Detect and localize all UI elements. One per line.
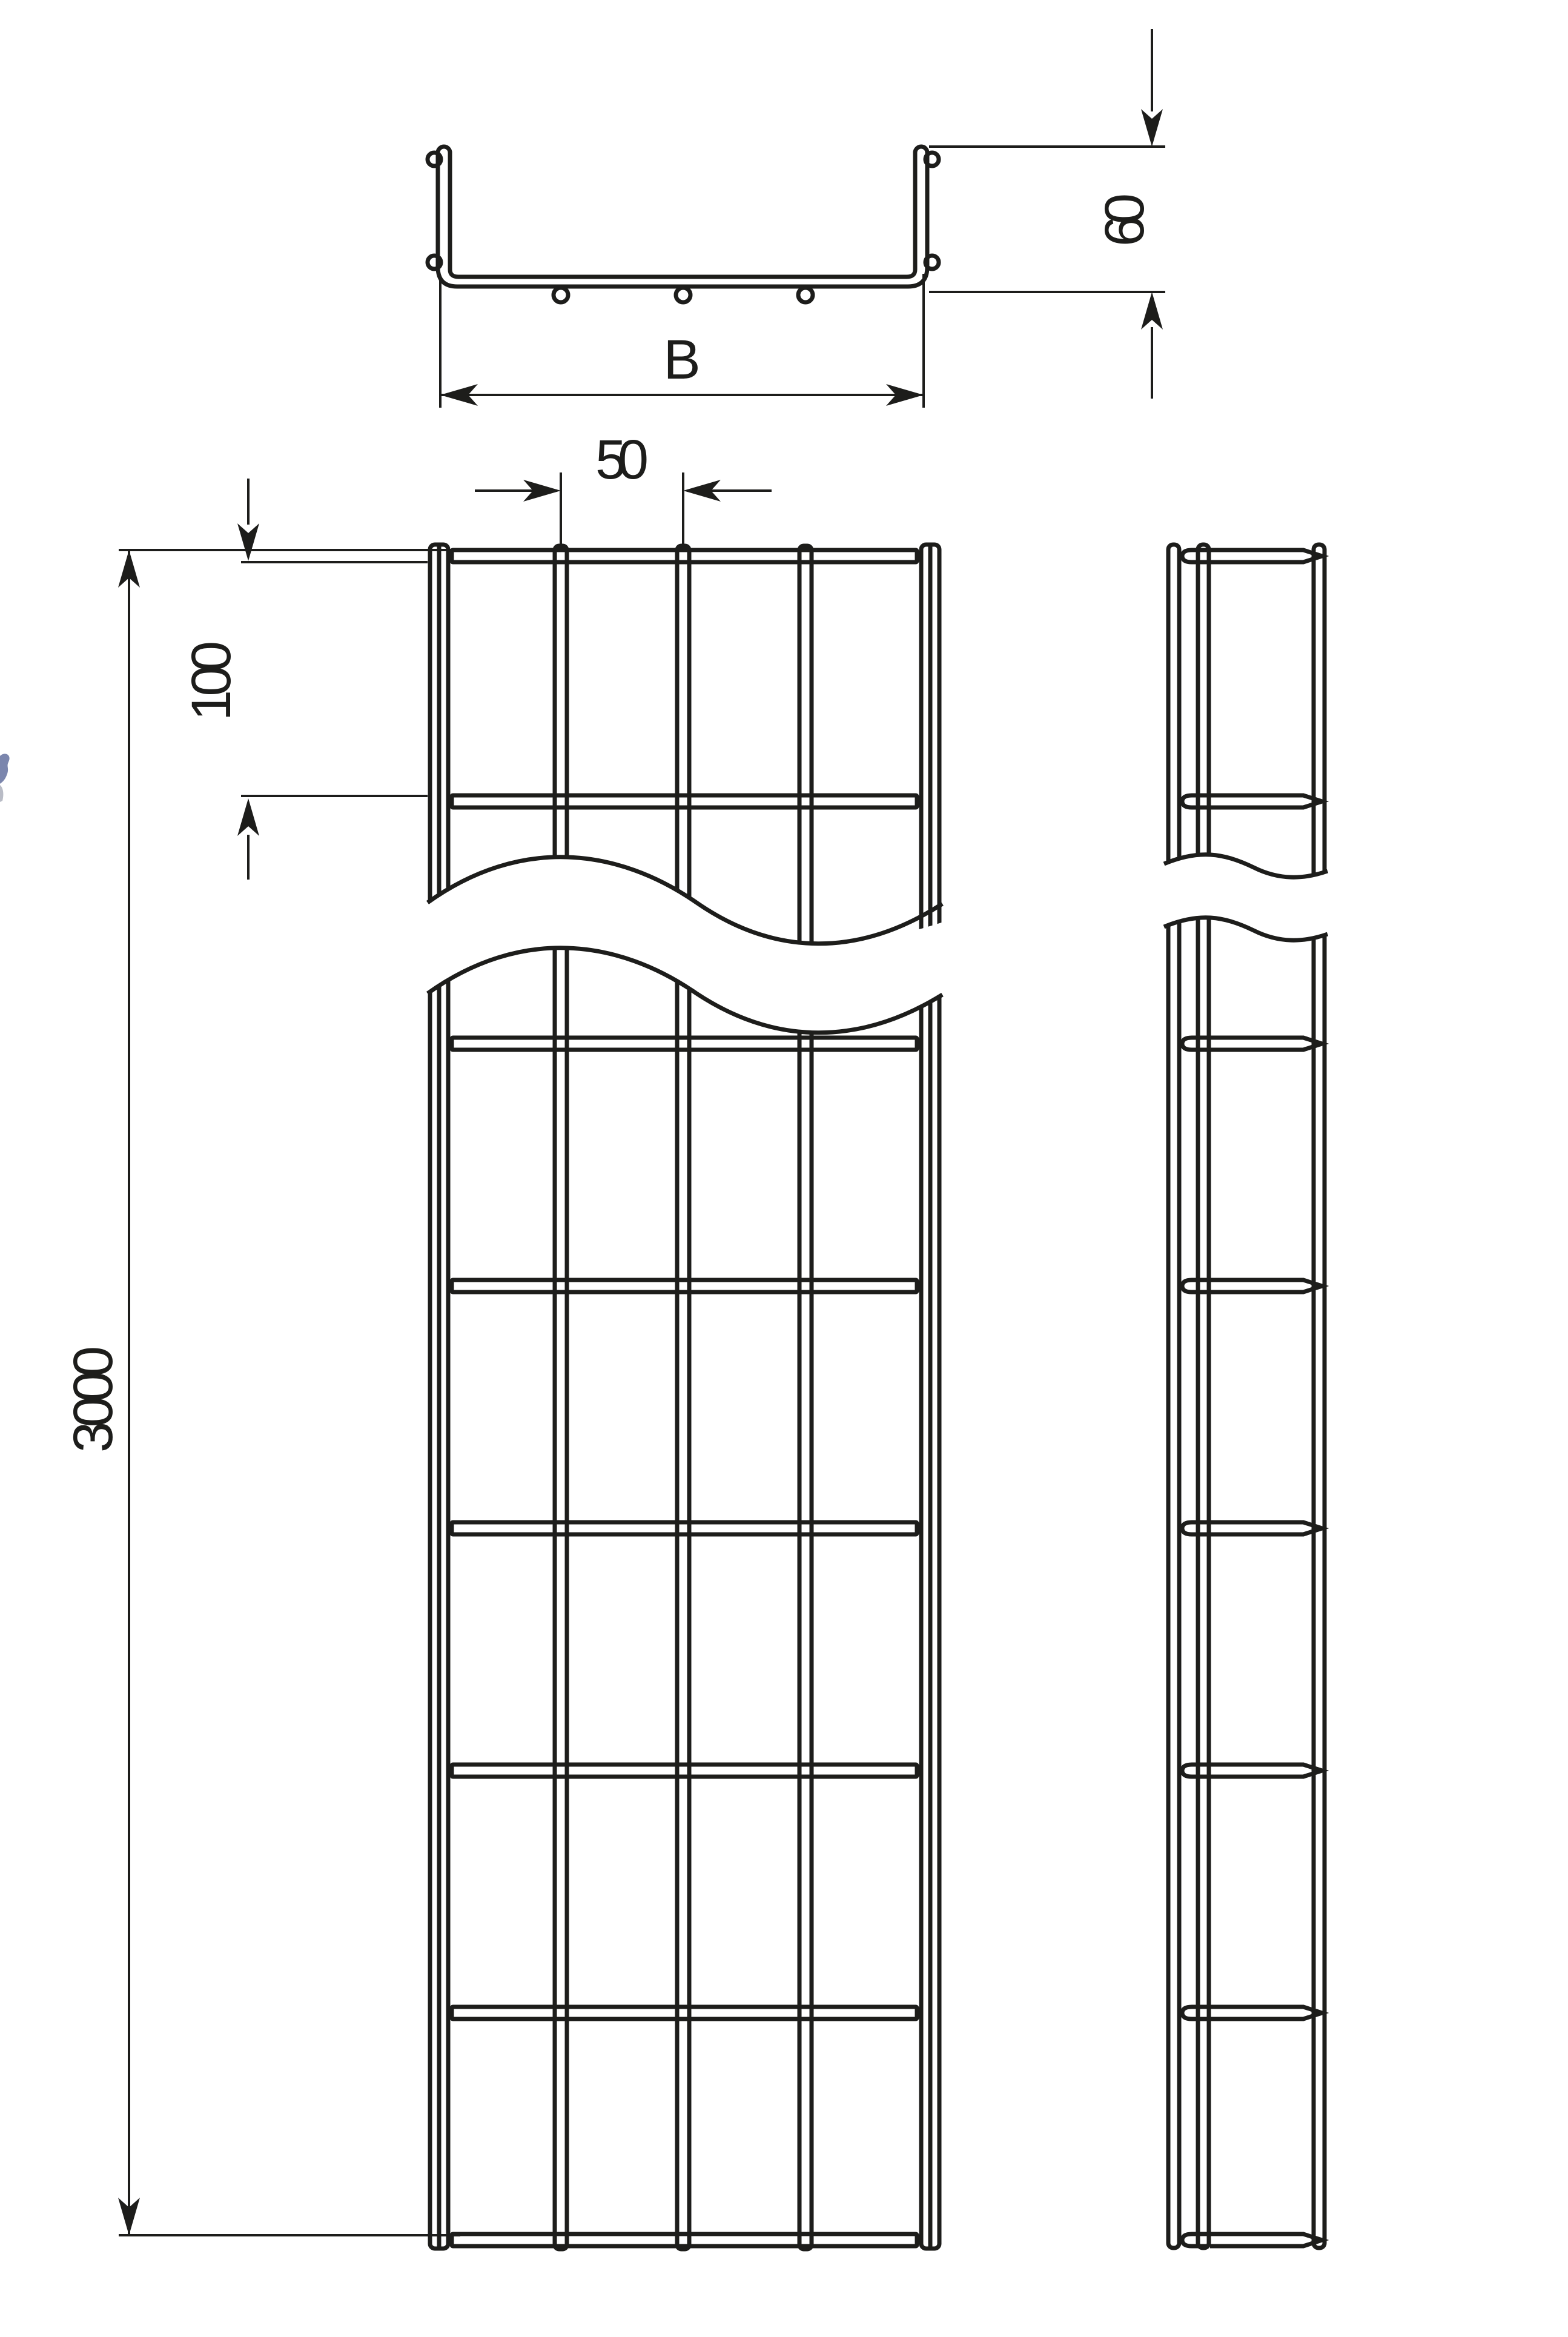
break-wave-lower	[428, 948, 942, 1033]
side-view	[1164, 545, 1328, 2248]
cross-wire	[452, 2007, 917, 2019]
cross-wire-side	[1182, 795, 1322, 807]
cross-wire	[452, 550, 917, 562]
artifact-mark	[0, 754, 10, 784]
break-wave-upper	[1164, 855, 1328, 877]
dimension-50: 50	[475, 429, 772, 544]
dimension-label-50: 50	[595, 429, 649, 491]
dimension-60: 60	[929, 29, 1165, 399]
dimension-3000-lines	[119, 550, 460, 2235]
cross-wire	[452, 1765, 917, 1777]
side-cross-wires	[1182, 550, 1322, 2246]
cross-wire-side	[1182, 1280, 1322, 1292]
cross-wire-side	[1182, 1765, 1322, 1777]
cross-wire	[452, 2234, 917, 2246]
wire-loop	[676, 288, 690, 302]
plan-lower-section	[430, 545, 939, 2249]
cross-wire-side	[1182, 1038, 1322, 1050]
arrowhead-up-icon	[1141, 292, 1163, 330]
cross-wire	[452, 1038, 917, 1050]
dimension-100: 100	[180, 479, 428, 880]
side-upper-section	[1168, 545, 1325, 2248]
dimension-label-3000: 3000	[62, 1346, 124, 1453]
arrowhead-down-icon	[237, 523, 259, 561]
cross-wire-side	[1182, 550, 1322, 562]
dimension-label-b: B	[663, 329, 700, 391]
dimension-label-100: 100	[180, 641, 242, 721]
arrowhead-down-icon	[1141, 109, 1163, 147]
technical-drawing-canvas: B 60	[0, 0, 1568, 2337]
break-lines-plan	[428, 857, 942, 1033]
cross-wire-side	[1182, 2007, 1322, 2019]
dimension-label-60: 60	[1094, 193, 1156, 247]
watermark-artifact	[0, 754, 10, 802]
wire-loop	[798, 288, 813, 302]
break-wave-lower	[1164, 918, 1328, 940]
dimension-100-lines	[241, 479, 428, 880]
wire-loop	[554, 288, 568, 302]
dimension-3000: 3000	[62, 550, 460, 2235]
plan-upper-section	[430, 545, 939, 2249]
arrowhead-up-icon	[237, 798, 259, 836]
cross-wire-side	[1182, 1522, 1322, 1534]
channel-outline	[438, 147, 927, 287]
cross-wire	[452, 795, 917, 807]
cross-wire	[452, 1522, 917, 1534]
plan-cross-wires	[452, 550, 917, 2246]
cross-section-view: B 60	[428, 29, 1165, 408]
cross-wire-side	[1182, 2234, 1322, 2246]
plan-view: 50 100 3000	[62, 429, 942, 2249]
cross-wire	[452, 1280, 917, 1292]
side-lower-section	[1168, 545, 1325, 2248]
drawing-page: B 60	[0, 0, 1568, 2337]
dimension-b: B	[440, 274, 924, 408]
break-lines-side	[1164, 855, 1328, 940]
artifact-smudge	[0, 785, 3, 802]
break-wave-upper	[428, 857, 942, 944]
